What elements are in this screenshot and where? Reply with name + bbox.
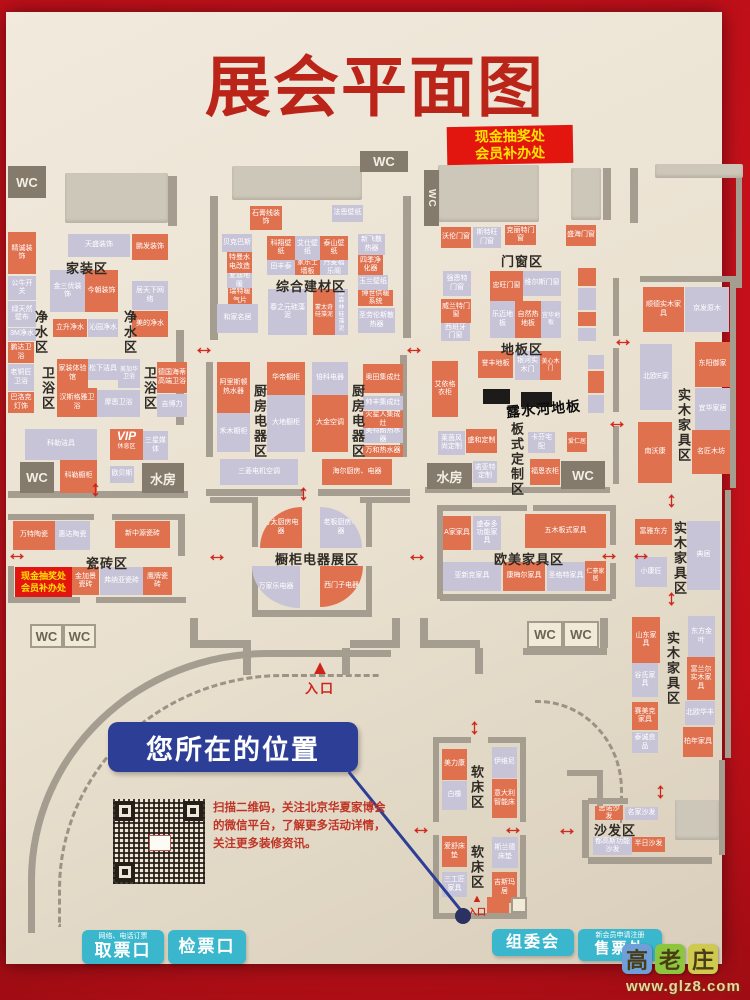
booth: 斯特旺门窗 — [473, 227, 501, 248]
booth: 老板厨房电器 — [320, 507, 362, 548]
qr-center-logo — [149, 835, 171, 851]
booth: 亚新克家具 — [443, 562, 501, 591]
zone-label: 卫浴区 — [140, 366, 159, 411]
booth: 公牛开关 — [8, 276, 36, 300]
booth: 沁园净水 — [88, 319, 118, 337]
direction-arrow-icon: ↕ — [298, 482, 309, 504]
booth: 春之元硅藻泥 — [268, 289, 307, 335]
direction-arrow-icon: ↔ — [206, 543, 228, 565]
wall-segment — [252, 497, 258, 547]
booth: 泰山壁纸 — [320, 236, 348, 260]
booth: 惠达陶瓷 — [55, 521, 90, 550]
zone-label: 综合建材区 — [276, 276, 346, 295]
booth: 宜华地板 — [541, 301, 561, 338]
wall-segment — [630, 168, 638, 223]
direction-arrow-icon: ↕ — [666, 587, 677, 609]
booth: 伊维尼 — [492, 747, 517, 778]
booth: 蒙太奇硅藻泥 — [313, 289, 335, 335]
zone-label: 厨房电器区 — [348, 384, 367, 459]
zone-label: 卫浴区 — [38, 366, 57, 411]
wall-segment — [403, 196, 411, 338]
booth: 自然热地板 — [515, 301, 541, 338]
building-block — [438, 165, 539, 222]
wall-segment — [533, 505, 610, 511]
facility-box — [511, 897, 527, 913]
ticket-pickup-window: 网络、电话订票 取票口 — [82, 930, 164, 964]
committee-label: 组委会 — [492, 929, 574, 956]
watermark-tile: 高 — [622, 944, 652, 974]
entrance-label: 入口 — [288, 678, 352, 697]
zone-label: 橱柜电器展区 — [275, 549, 359, 568]
zone-label: 软床区 — [467, 845, 486, 890]
booth: 美心木门 — [540, 351, 561, 380]
qr-instruction-text: 扫描二维码，关注北京华夏家博会的微信平台，了解更多活动详情，关注更多装修资讯。 — [213, 800, 387, 853]
booth: 摩恩卫浴 — [97, 390, 140, 417]
booth: 特曼水电改造 — [227, 252, 252, 273]
booth: 田丰泰 — [267, 260, 295, 275]
wall-segment — [730, 276, 736, 488]
booth — [578, 312, 596, 326]
booth: 西班牙门窗 — [441, 323, 470, 341]
wall-segment — [433, 737, 471, 743]
main-entrance: ▲ 入口 — [288, 658, 352, 697]
booth — [578, 288, 596, 310]
building-block — [65, 173, 168, 223]
facility-WC: WC — [20, 462, 54, 493]
wall-segment — [8, 514, 94, 520]
booth: 宜华家居 — [695, 388, 730, 430]
booth: 奥特朗热水器 — [363, 428, 403, 443]
direction-arrow-icon: ↕ — [666, 489, 677, 511]
booth: 福恩衣柜 — [530, 459, 560, 485]
booth: 富兰尔实木家具 — [687, 657, 715, 700]
wall-segment — [520, 737, 526, 822]
entrance-arrow-icon: ▲ — [288, 658, 352, 678]
booth: 东阳御家 — [695, 342, 730, 387]
booth — [588, 371, 604, 393]
booth: 德国海蒂高端卫浴 — [157, 362, 187, 393]
facility-WC: WC — [8, 166, 46, 198]
booth: 万家乐电器 — [252, 566, 300, 608]
booth: 美加华卫浴 — [118, 359, 140, 388]
zone-label: 欧美家具区 — [494, 549, 564, 568]
booth: 倍科电器 — [312, 362, 348, 395]
zone-label: 瓷砖区 — [86, 553, 128, 572]
booth: 白橡 — [442, 781, 467, 810]
wall-segment — [206, 489, 304, 496]
booth: 禾木橱柜 — [217, 413, 250, 452]
badge-line: 现金抽奖处 — [15, 570, 72, 582]
booth: 科勒洁具 — [25, 429, 97, 460]
booth: 新中源瓷砖 — [115, 521, 170, 548]
ticket-check-label: 检票口 — [168, 930, 246, 964]
facility-WC: WC — [563, 621, 599, 648]
booth: 博世供暖系统 — [358, 290, 393, 306]
booth: 精诚装饰 — [8, 232, 36, 274]
booth: 居天下网络 — [132, 281, 168, 310]
direction-arrow-icon: ↔ — [556, 817, 578, 839]
booth: 艾仕壁纸 — [295, 236, 320, 260]
booth: 乐迈地板 — [490, 301, 515, 338]
booth: 泰诚良品 — [632, 732, 658, 753]
wall-segment — [603, 168, 611, 220]
booth: 三菱电机空调 — [220, 459, 298, 485]
booth: 名匠木坊 — [692, 430, 730, 474]
facility-WC: WC — [561, 461, 605, 489]
watermark-tile: 庄 — [688, 944, 718, 974]
booth: 沃伦门窗 — [441, 227, 471, 248]
cash-lottery-badge-left: 现金抽奖处 会员补办处 — [15, 567, 72, 597]
booth: 鹰牌瓷砖 — [143, 567, 172, 595]
booth: 华帝橱柜 — [267, 362, 305, 395]
wall-segment — [613, 348, 619, 412]
booth: 克丽特门窗 — [505, 225, 536, 245]
booth: 立升净水 — [53, 319, 87, 337]
ticket-office-sublabel: 新会员申请注册 — [578, 929, 662, 940]
booth: 和家名居 — [217, 304, 258, 333]
building-block — [571, 168, 601, 220]
booth: 西门子电器 — [320, 566, 363, 607]
wall-segment — [392, 618, 400, 648]
booth: 忠旺门窗 — [490, 271, 523, 301]
booth: 法恩壁纸 — [332, 205, 363, 222]
booth: 柏年家具 — [683, 727, 713, 757]
booth: 海尔厨房、电器 — [322, 459, 392, 485]
wechat-qr-code — [113, 799, 205, 884]
booth: 天盛装饰 — [68, 234, 130, 257]
booth: 仁豪家居 — [585, 561, 606, 591]
direction-arrow-icon: ↔ — [598, 542, 620, 564]
wall-segment — [8, 566, 14, 600]
wall-segment — [366, 566, 372, 612]
booth: 石膏线装饰 — [250, 206, 282, 230]
booth: 五木板式家具 — [525, 514, 606, 548]
booth: 北欧E家 — [640, 344, 672, 410]
facility-WC: WC — [424, 170, 439, 226]
booth: 巴洛克灯饰 — [8, 392, 34, 413]
building-block — [675, 800, 719, 840]
page-title: 展会平面图 — [150, 34, 600, 130]
booth: 诺亚特定制 — [473, 461, 497, 483]
qr-eye-icon — [115, 801, 135, 821]
cash-lottery-badge-top: 现金抽奖处 会员补办处 — [447, 125, 574, 165]
booth: A家家具 — [443, 516, 471, 550]
wall-segment — [719, 760, 725, 855]
facility-WC: WC — [527, 621, 563, 648]
booth: 名家沙发 — [625, 807, 658, 820]
floor-plan-photo: { "title": "展会平面图", "badges": { "top": {… — [0, 0, 750, 1000]
booth: 强恩特门窗 — [443, 271, 471, 296]
wall-segment — [440, 594, 612, 601]
booth: 大地橱柜 — [267, 395, 305, 452]
booth: 爱舒床垫 — [442, 836, 467, 867]
booth: 典居 — [687, 521, 720, 590]
booth: 大金空调 — [312, 395, 348, 452]
booth: 艾依格衣柜 — [432, 361, 458, 417]
direction-arrow-icon: ↔ — [630, 542, 652, 564]
booth: 丹麦福乐阁 — [320, 260, 348, 275]
booth: 斯兰德床垫 — [492, 837, 518, 868]
wall-segment — [437, 505, 527, 511]
facility-WC: WC — [63, 624, 96, 648]
zone-label: 实木家具区 — [674, 388, 693, 463]
zone-label: 净水区 — [120, 310, 139, 355]
wall-segment — [206, 362, 213, 457]
badge-line: 会员补办处 — [15, 582, 72, 594]
booth: 绿森林硅藻泥 — [335, 289, 348, 335]
wall-segment — [640, 276, 736, 282]
booth: 家装体验馆 — [57, 359, 88, 388]
booth: 阿里斯顿热水器 — [217, 362, 250, 413]
booth: 威兰特门窗 — [441, 299, 471, 323]
wall-segment — [433, 737, 439, 822]
booth: 谷氏家具 — [632, 663, 658, 697]
booth: 欧贝斯 — [110, 466, 134, 483]
vip-lounge: VIP 休息区 — [110, 429, 143, 460]
booth: 意大利智能床 — [492, 779, 517, 818]
direction-arrow-icon: ↔ — [606, 410, 628, 432]
organizing-committee: 组委会 — [492, 929, 574, 956]
wall-segment — [588, 798, 628, 804]
wall-segment — [168, 176, 177, 226]
building-block — [655, 164, 743, 178]
wall-segment — [523, 648, 607, 655]
booth: 美力康 — [442, 749, 467, 780]
zone-label: 地板区 — [501, 339, 543, 358]
ticket-pickup-label: 取票口 — [82, 941, 164, 961]
direction-arrow-icon: ↕ — [469, 716, 480, 738]
direction-arrow-icon: ↔ — [502, 816, 524, 838]
booth: 火星人集成灶 — [363, 411, 403, 428]
facility-水房: 水房 — [142, 463, 184, 493]
booth: 爱迪地暖 — [227, 273, 252, 288]
booth: 汉斯格雅卫浴 — [57, 388, 97, 417]
direction-arrow-icon: ↔ — [6, 542, 28, 564]
direction-arrow-icon: ↔ — [410, 816, 432, 838]
direction-arrow-icon: ↔ — [193, 336, 215, 358]
zone-label: 板式定制区 — [507, 422, 526, 497]
wall-segment — [190, 640, 251, 648]
booth: 老铜匠卫浴 — [8, 364, 34, 391]
qr-eye-icon — [183, 801, 203, 821]
wall-segment — [610, 505, 616, 545]
booth: 奥田集成灶 — [363, 364, 403, 393]
zone-label: 家装区 — [66, 258, 108, 277]
booth: 山东家具 — [632, 617, 660, 663]
ticket-check-gate: 检票口 — [168, 930, 246, 964]
direction-arrow-icon: ↕ — [90, 478, 101, 500]
booth: 新飞散热器 — [358, 234, 385, 255]
wall-segment — [428, 640, 480, 648]
booth: 顺德实木家具 — [643, 287, 684, 332]
zone-label: 厨房电器区 — [250, 384, 269, 459]
booth: 瑞特暖气片 — [228, 288, 252, 305]
booth — [578, 268, 596, 286]
booth: 家乐士墙板 — [295, 260, 320, 275]
booth: 圣劳伦斯散热器 — [358, 308, 395, 333]
wall-segment — [736, 168, 742, 288]
booth: 方太厨房电器 — [260, 507, 302, 548]
wall-segment — [8, 597, 80, 603]
badge-line: 现金抽奖处 — [447, 126, 573, 146]
booth: 玉兰壁纸 — [358, 275, 388, 290]
wall-segment — [252, 610, 322, 617]
entrance-arrow-icon: ▲ — [462, 894, 492, 905]
zone-label: 净水区 — [31, 310, 50, 355]
booth: 松下洁具 — [88, 359, 118, 380]
facility-WC: WC — [360, 151, 408, 172]
wall-segment — [112, 514, 182, 520]
booth: 维尔斯门窗 — [523, 271, 561, 296]
booth: 科翔壁纸 — [267, 236, 295, 260]
wall-segment — [420, 618, 428, 648]
booth: 都高斯功能沙发 — [593, 837, 632, 855]
booth: 东方金叶 — [688, 616, 715, 657]
wall-segment — [600, 618, 608, 648]
booth: 北欧华丰 — [685, 701, 715, 725]
badge-line: 会员补办处 — [447, 144, 573, 164]
vip-label: VIP — [110, 429, 143, 443]
facility-水房: 水房 — [427, 463, 472, 489]
qr-eye-icon — [115, 862, 135, 882]
ticket-pickup-sublabel: 网络、电话订票 — [82, 930, 164, 941]
booth: 鹏发装饰 — [132, 234, 168, 260]
wall-segment — [588, 857, 712, 864]
site-watermark: 高老庄 — [622, 944, 718, 974]
booth: 南沃康 — [638, 422, 672, 483]
direction-arrow-icon: ↔ — [403, 336, 425, 358]
wall-segment — [366, 497, 372, 547]
vip-sublabel: 休息区 — [110, 443, 143, 451]
you-are-here-banner: 您所在的位置 — [108, 722, 358, 772]
wall-segment — [318, 610, 372, 617]
direction-arrow-icon: ↕ — [655, 780, 666, 802]
wall-segment — [178, 514, 185, 556]
watermark-tile: 老 — [655, 944, 685, 974]
booth: 盛海门窗 — [566, 225, 596, 246]
wall-segment — [318, 489, 410, 496]
booth: 贝克巴斯 — [222, 234, 252, 252]
booth: 三星媒体 — [143, 431, 168, 460]
booth: 万和热水器 — [363, 445, 403, 457]
booth: 盛泰多功能家具 — [473, 516, 501, 550]
booth: 吉博力 — [157, 394, 187, 417]
booth: 半日沙发 — [632, 837, 665, 852]
zone-label: 沙发区 — [594, 820, 636, 839]
wall-segment — [210, 497, 258, 503]
booth: 卡芬宅配 — [528, 432, 555, 453]
booth: 盛和定制 — [466, 429, 497, 453]
booth: 帅丰集成灶 — [363, 396, 403, 410]
wall-segment — [96, 597, 186, 603]
booth: 京发原木 — [685, 287, 729, 332]
building-block — [232, 166, 362, 200]
wall-segment — [582, 800, 589, 858]
booth: 莱茵风尚定制 — [438, 431, 465, 455]
booth — [588, 355, 604, 369]
booth — [578, 328, 596, 341]
zone-label: 软床区 — [467, 765, 486, 810]
watermark-url: www.glz8.com — [626, 978, 741, 995]
facility-WC: WC — [30, 624, 63, 648]
wall-segment — [243, 648, 251, 675]
booth: 赛美克家具 — [632, 702, 658, 730]
road-curve-dashed-right — [535, 700, 623, 823]
zone-label: 门窗区 — [501, 251, 543, 270]
booth: 爱仁居 — [567, 432, 587, 452]
direction-arrow-icon: ↔ — [612, 328, 634, 350]
wall-segment — [488, 737, 526, 743]
wall-segment — [613, 426, 619, 484]
you-are-here-dot — [455, 908, 471, 924]
booth: 四季净化器 — [358, 255, 383, 275]
zone-label: 实木家具区 — [663, 631, 682, 706]
booth: 思诺沙发 — [595, 806, 623, 820]
direction-arrow-icon: ↔ — [406, 543, 428, 565]
wall-segment — [725, 490, 731, 758]
wall-segment — [475, 648, 483, 674]
